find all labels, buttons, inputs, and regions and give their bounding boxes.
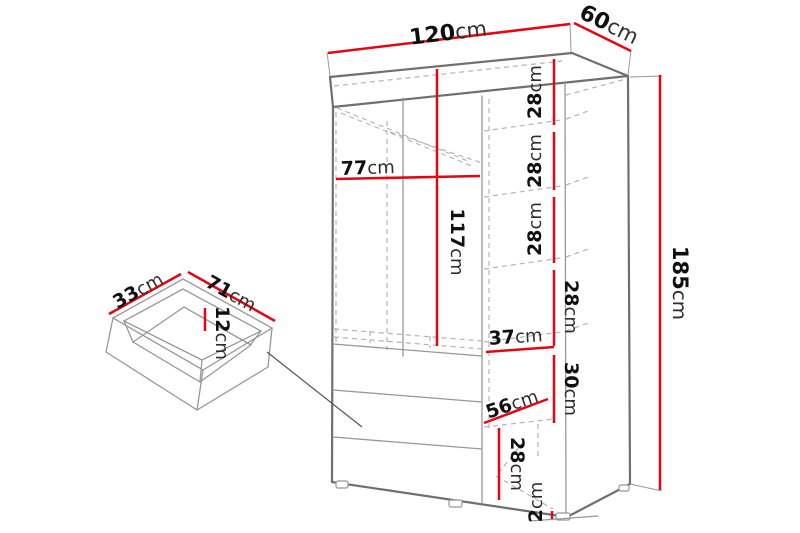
shelf-line-2 <box>484 186 561 197</box>
dim-label-drawer-height: 12cm <box>211 306 233 360</box>
dimension-lines <box>327 23 662 519</box>
ext-185-bottom <box>630 484 662 491</box>
top-left-edge <box>330 77 333 107</box>
ext-120-right <box>570 23 571 52</box>
leader-line <box>267 352 362 427</box>
dim-label-plinth: 2cm <box>525 482 547 523</box>
diagram-canvas: 120cm 60cm 185cm 77cm 117cm 28cm 28cm 28… <box>0 0 800 533</box>
back-right-edge <box>628 76 630 484</box>
drawer-fronts <box>333 329 482 449</box>
dim-label-left-width: 77cm <box>340 156 395 180</box>
dim-label-left-height: 117cm <box>446 208 468 275</box>
strip-shelf-hint-3 <box>566 248 591 257</box>
left-front-edge <box>332 107 333 482</box>
dim-label-depth: 60cm <box>575 0 642 50</box>
dim-label-width: 120cm <box>408 16 488 50</box>
drawer-inner-wall-edges <box>124 321 261 381</box>
dim-label-shelf-2: 28cm <box>524 134 546 188</box>
dim-label-shelf-5: 30cm <box>560 362 582 416</box>
drawer-top-line <box>333 344 482 356</box>
dim-label-shelf-width: 37cm <box>488 324 543 350</box>
shelf-line-3 <box>484 258 561 269</box>
top-right-edge <box>572 53 628 76</box>
foot-front-middle <box>449 500 462 507</box>
strip-shelf-hint-2 <box>566 176 591 185</box>
drawer-separator-2 <box>333 437 482 449</box>
dim-label-height: 185cm <box>668 246 692 320</box>
top-front-edge <box>333 76 628 107</box>
ext-120-left <box>327 52 330 76</box>
dim-label-shelf-1: 28cm <box>524 65 546 119</box>
shelf-line-1 <box>484 120 561 131</box>
foot-back-right <box>619 485 629 491</box>
wardrobe-dimension-diagram: 120cm 60cm 185cm 77cm 117cm 28cm 28cm 28… <box>0 0 800 533</box>
dim-label-interior-depth: 56cm <box>483 385 541 423</box>
dim-label-drawer-depth: 33cm <box>109 268 167 313</box>
wardrobe-body <box>330 53 630 517</box>
dim-label-shelf-4: 28cm <box>560 280 582 334</box>
foot-front-left <box>336 481 348 488</box>
strip-shelf-hint-1 <box>566 110 591 119</box>
drawer-separator-1 <box>333 390 482 402</box>
dim-label-shelf-6: 28cm <box>506 437 528 491</box>
dim-label-shelf-3: 28cm <box>524 202 546 256</box>
drawer-wall-edges <box>106 318 272 410</box>
ext-185-top <box>630 76 662 77</box>
ext-60-right <box>628 50 631 75</box>
